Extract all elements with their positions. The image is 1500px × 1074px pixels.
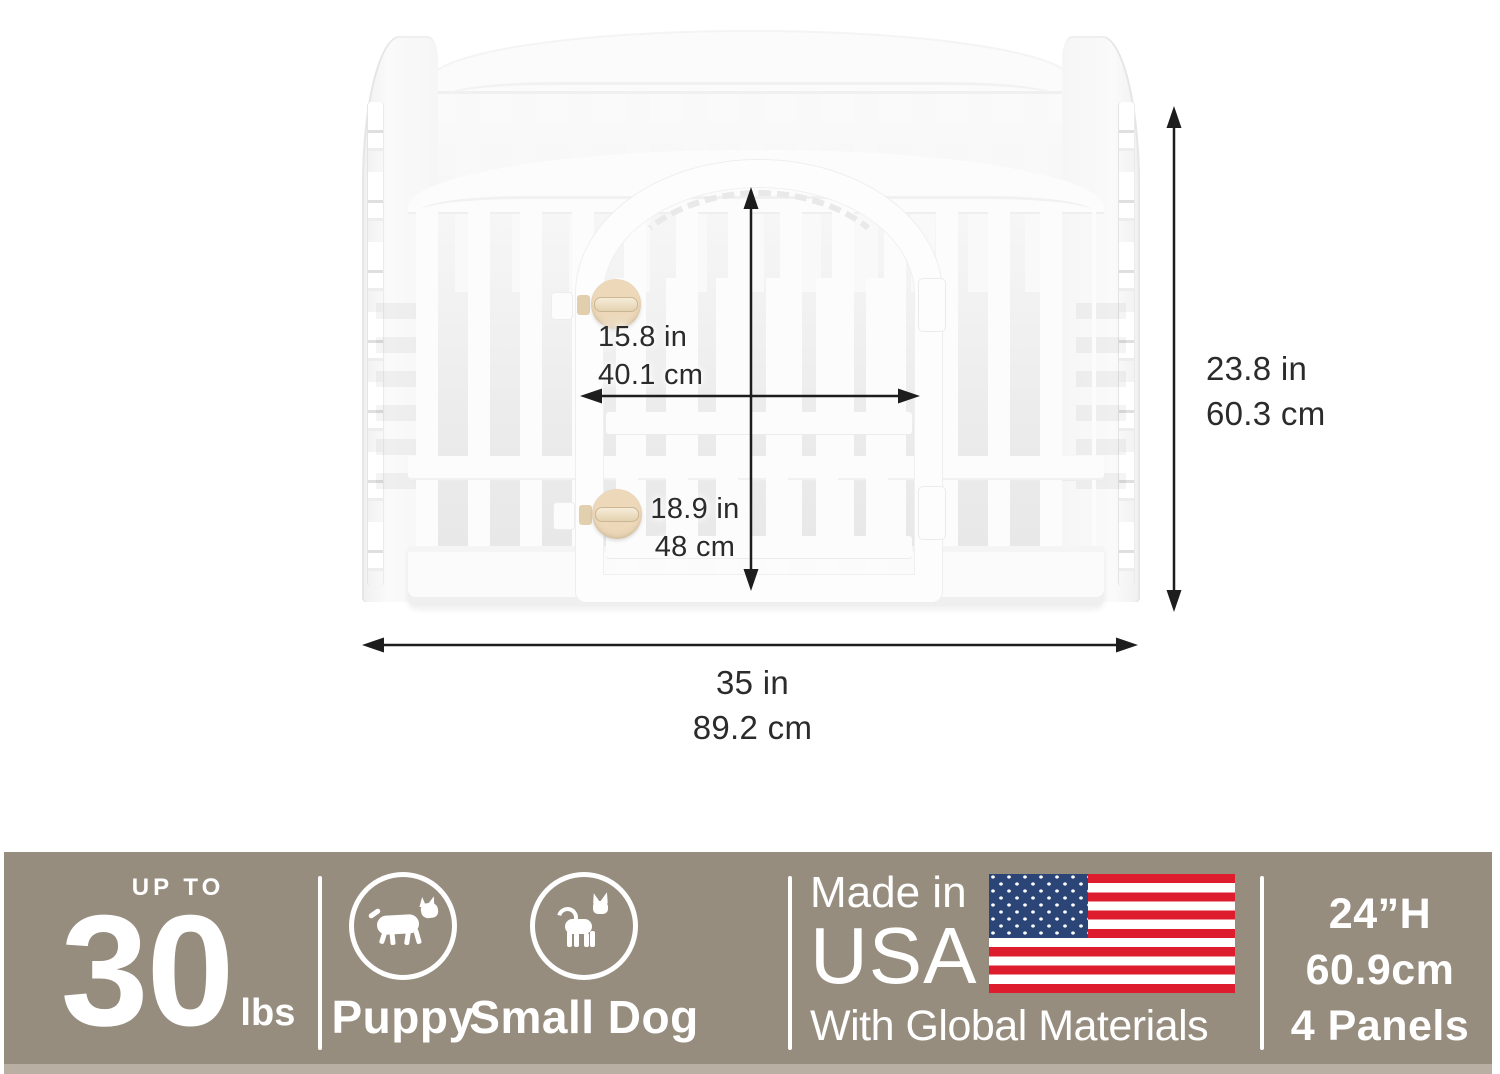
flag-stars [989,874,1088,938]
door-width-label: 15.8 in 40.1 cm [598,318,703,394]
weight-capacity: UP TO 30 lbs [40,874,316,1046]
pet-type-small-dog: Small Dog [466,872,702,1044]
puppy-icon [349,872,457,980]
feature-banner: UP TO 30 lbs Pup [4,852,1492,1064]
spec-panel-count: 4 Panels [1268,998,1492,1054]
weight-value: 30 [61,896,233,1046]
pen-width-cm: 89.2 cm [650,705,855,750]
banner-divider-3 [1260,876,1264,1050]
door-height-inches: 18.9 in [645,490,745,528]
pen-height-inches: 23.8 in [1206,346,1326,391]
door-width-cm: 40.1 cm [598,356,703,394]
product-diagram: 15.8 in 40.1 cm 18.9 in 48 cm 23.8 in 60… [0,0,1500,1074]
pen-width-inches: 35 in [650,660,855,705]
materials-text: With Global Materials [810,1002,1208,1050]
pen-width-label: 35 in 89.2 cm [650,660,855,750]
banner-divider-2 [788,876,792,1050]
pen-height-cm: 60.3 cm [1206,391,1326,436]
us-flag-icon [989,874,1235,993]
spec-height-inches: 24”H [1268,886,1492,942]
panel-specs: 24”H 60.9cm 4 Panels [1268,886,1492,1054]
pen-height-label: 23.8 in 60.3 cm [1206,346,1326,436]
spec-height-cm: 60.9cm [1268,942,1492,998]
weight-unit: lbs [240,992,295,1035]
banner-bottom-edge [4,1064,1492,1074]
door-height-label: 18.9 in 48 cm [645,490,745,566]
door-height-cm: 48 cm [645,528,745,566]
small-dog-label: Small Dog [466,990,702,1044]
small-dog-icon [530,872,638,980]
door-width-inches: 15.8 in [598,318,703,356]
